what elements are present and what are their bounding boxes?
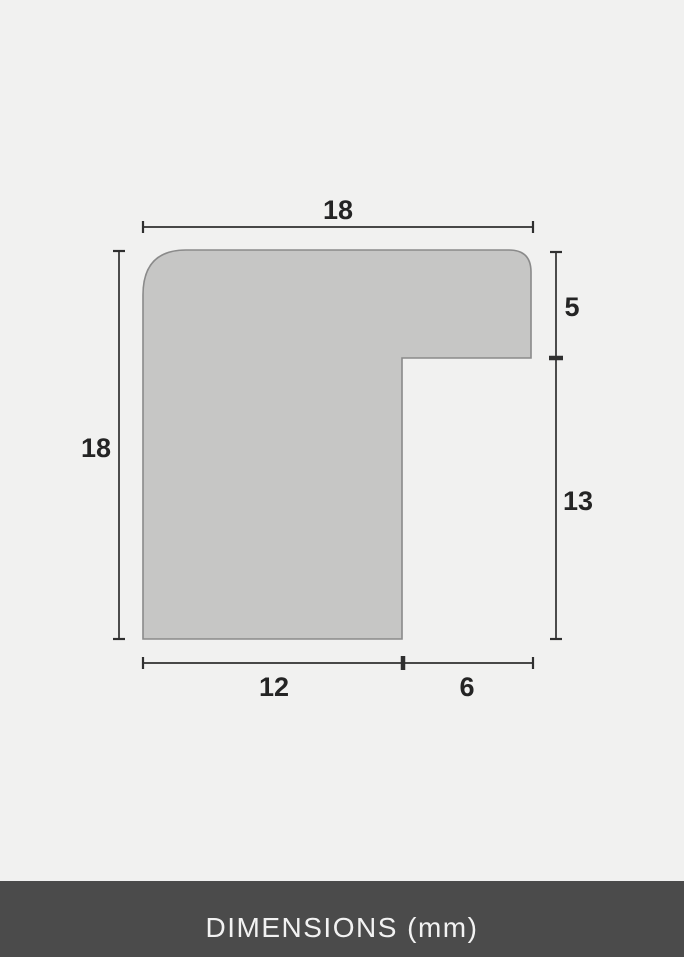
footer-bar: DIMENSIONS (mm) [0,881,684,957]
dimension-label-right-upper: 5 [564,292,579,322]
dimension-label-bottom-right: 6 [459,672,474,702]
dimension-label-right-lower: 13 [563,486,593,516]
profile-dimension-diagram: 18 18 5 13 [0,0,684,881]
dimension-label-left-height: 18 [81,433,111,463]
profile-diagram-svg: 18 18 5 13 [0,0,684,881]
dimension-bottom [143,656,533,670]
dimension-label-top-width: 18 [323,195,353,225]
dimension-label-bottom-left: 12 [259,672,289,702]
dimension-right [549,252,563,639]
page: 18 18 5 13 [0,0,684,957]
profile-shape [143,250,531,639]
footer-caption: DIMENSIONS (mm) [206,912,479,944]
dimension-left [113,251,125,639]
